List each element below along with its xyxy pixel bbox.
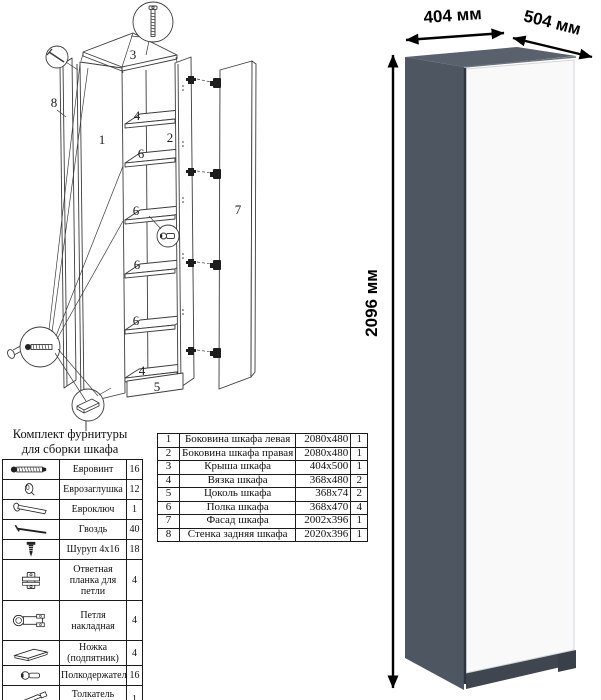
hardware-row: Ответная планка для петли4 (3, 560, 143, 601)
cabinet-side-panel (405, 57, 464, 690)
height-label: 2096 мм (362, 269, 381, 337)
hardware-qty: 18 (127, 540, 143, 560)
part-number: 5 (158, 488, 180, 502)
hinge-icon (9, 611, 53, 630)
part-number: 4 (158, 474, 180, 488)
part-qty: 1 (351, 528, 368, 542)
part-size: 2002x396 (296, 515, 351, 529)
hardware-row: Гвоздь40 (3, 520, 143, 540)
parts-row: 8Стенка задняя шкафа2020x3961 (158, 528, 368, 542)
screw-icon (9, 540, 53, 559)
part-size: 2080x480 (296, 434, 351, 448)
hardware-icon-cell (3, 520, 60, 540)
part-label-8: 8 (51, 95, 58, 110)
hardware-name: Толкатель (пуш) (60, 686, 127, 700)
assembly-sheet: 3 4 1 2 6 6 6 6 7 8 4 5 404 мм 50 (0, 0, 601, 700)
euro-screw-icon (9, 460, 53, 479)
hardware-icon-cell (3, 480, 60, 500)
part-qty: 1 (351, 515, 368, 529)
hardware-icon-cell (3, 500, 60, 520)
hardware-icon-cell (3, 540, 60, 560)
part-number: 3 (158, 461, 180, 475)
part-label-6: 6 (133, 203, 140, 218)
hinge-icon (210, 169, 221, 179)
part-label-4: 4 (134, 108, 141, 123)
hardware-icon-cell (3, 601, 60, 641)
part-name: Фасад шкафа (180, 515, 296, 529)
part-number: 7 (158, 515, 180, 529)
part-name: Крыша шкафа (180, 461, 296, 475)
hardware-kit-title-line1: Комплект фурнитуры (0, 427, 140, 442)
hardware-kit-title-line2: для сборки шкафа (0, 442, 140, 457)
part-qty: 2 (351, 474, 368, 488)
part-name: Стенка задняя шкафа (180, 528, 296, 542)
cap-icon (9, 480, 53, 499)
part-qty: 2 (351, 488, 368, 502)
hardware-qty: 1 (127, 686, 143, 700)
right-side-panel-part (175, 57, 194, 389)
hardware-row: Полкодержатель16 (3, 666, 143, 686)
part-label-4: 4 (139, 363, 146, 378)
part-label-1: 1 (99, 132, 106, 147)
part-name: Боковина шкафа правая (180, 447, 296, 461)
parts-row: 2Боковина шкафа правая2080x4801 (158, 447, 368, 461)
part-label-2: 2 (167, 130, 174, 145)
part-number: 1 (158, 434, 180, 448)
parts-row: 5Цоколь шкафа368x742 (158, 488, 368, 502)
hardware-row: Евровинт16 (3, 460, 143, 480)
part-size: 404x500 (296, 461, 351, 475)
part-qty: 1 (351, 461, 368, 475)
push-rod-icon (9, 690, 53, 700)
hardware-icon-cell (3, 460, 60, 480)
hardware-qty: 4 (127, 560, 143, 601)
cabinet-render (405, 47, 576, 690)
cabinet-door (466, 60, 574, 673)
part-label-7: 7 (235, 202, 242, 217)
hardware-name: Шуруп 4x16 (60, 540, 127, 560)
hardware-row: Евроключ1 (3, 500, 143, 520)
shelf-pin-icon (9, 666, 53, 685)
door-panel-part (219, 61, 256, 389)
part-number: 8 (158, 528, 180, 542)
nail-icon (9, 520, 53, 539)
callout-key-screw (6, 327, 60, 367)
part-size: 368x480 (296, 474, 351, 488)
callout-euro-screw (133, 2, 173, 42)
part-size: 368x470 (296, 501, 351, 515)
hex-key-icon (9, 500, 53, 519)
part-size: 2080x480 (296, 447, 351, 461)
foot-icon (9, 644, 53, 663)
part-qty: 1 (351, 434, 368, 448)
part-qty: 1 (351, 447, 368, 461)
hardware-qty: 16 (127, 460, 143, 480)
parts-row: 7Фасад шкафа2002x3961 (158, 515, 368, 529)
hardware-qty: 12 (127, 480, 143, 500)
hardware-row: Еврозаглушка12 (3, 480, 143, 500)
part-label-3: 3 (130, 47, 137, 62)
part-name: Боковина шкафа левая (180, 434, 296, 448)
part-label-5: 5 (154, 379, 161, 394)
parts-row: 1Боковина шкафа левая2080x4801 (158, 434, 368, 448)
parts-row: 6Полка шкафа368x4704 (158, 501, 368, 515)
left-side-panel-part (77, 62, 125, 404)
hardware-qty: 4 (127, 601, 143, 641)
parts-row: 4Вязка шкафа368x4802 (158, 474, 368, 488)
hardware-name: Евровинт (60, 460, 127, 480)
hardware-row: Петля накладная4 (3, 601, 143, 641)
hinge-plate-icon (9, 571, 53, 590)
part-size: 368x74 (296, 488, 351, 502)
part-name: Полка шкафа (180, 501, 296, 515)
hardware-qty: 40 (127, 520, 143, 540)
hardware-name: Гвоздь (60, 520, 127, 540)
hardware-icon-cell (3, 686, 60, 700)
hardware-name: Петля накладная (60, 601, 127, 641)
hardware-row: Шуруп 4x1618 (3, 540, 143, 560)
hardware-qty: 4 (127, 641, 143, 666)
part-label-6: 6 (138, 146, 145, 161)
hinge-icon (210, 260, 221, 270)
part-label-6: 6 (134, 257, 141, 272)
part-qty: 4 (351, 501, 368, 515)
hardware-qty: 1 (127, 500, 143, 520)
part-name: Вязка шкафа (180, 474, 296, 488)
depth-label: 504 мм (522, 6, 583, 39)
part-size: 2020x396 (296, 528, 351, 542)
part-number: 6 (158, 501, 180, 515)
hardware-icon-cell (3, 560, 60, 601)
hardware-kit-title: Комплект фурнитуры для сборки шкафа (0, 427, 140, 457)
hinge-icon (210, 78, 221, 88)
part-number: 2 (158, 447, 180, 461)
hardware-name: Евроключ (60, 500, 127, 520)
parts-row: 3Крыша шкафа404x5001 (158, 461, 368, 475)
hardware-row: Толкатель (пуш)1 (3, 686, 143, 700)
back-panel-part (60, 58, 76, 388)
width-dimension: 404 мм (406, 4, 504, 40)
hinge-dashed-lines (197, 79, 211, 352)
hardware-name: Полкодержатель (60, 666, 127, 686)
hardware-name: Еврозаглушка (60, 480, 127, 500)
callout-shelf-pin (149, 216, 179, 247)
hardware-name: Ответная планка для петли (60, 560, 127, 601)
part-name: Цоколь шкафа (180, 488, 296, 502)
hardware-qty: 16 (127, 666, 143, 686)
callout-nail (46, 46, 78, 70)
width-label: 404 мм (423, 4, 482, 27)
height-dimension: 2096 мм (362, 55, 393, 688)
hardware-name: Ножка (подпятник) (60, 641, 127, 666)
hardware-icon-cell (3, 641, 60, 666)
part-label-6: 6 (133, 313, 140, 328)
exploded-diagram: 3 4 1 2 6 6 6 6 7 8 4 5 (6, 2, 256, 431)
hinge-icon (210, 348, 221, 358)
parts-table: 1Боковина шкафа левая2080x48012Боковина … (157, 433, 368, 542)
hardware-kit-table: Евровинт16Еврозаглушка12Евроключ1Гвоздь4… (2, 459, 143, 700)
hardware-row: Ножка (подпятник)4 (3, 641, 143, 666)
hardware-icon-cell (3, 666, 60, 686)
